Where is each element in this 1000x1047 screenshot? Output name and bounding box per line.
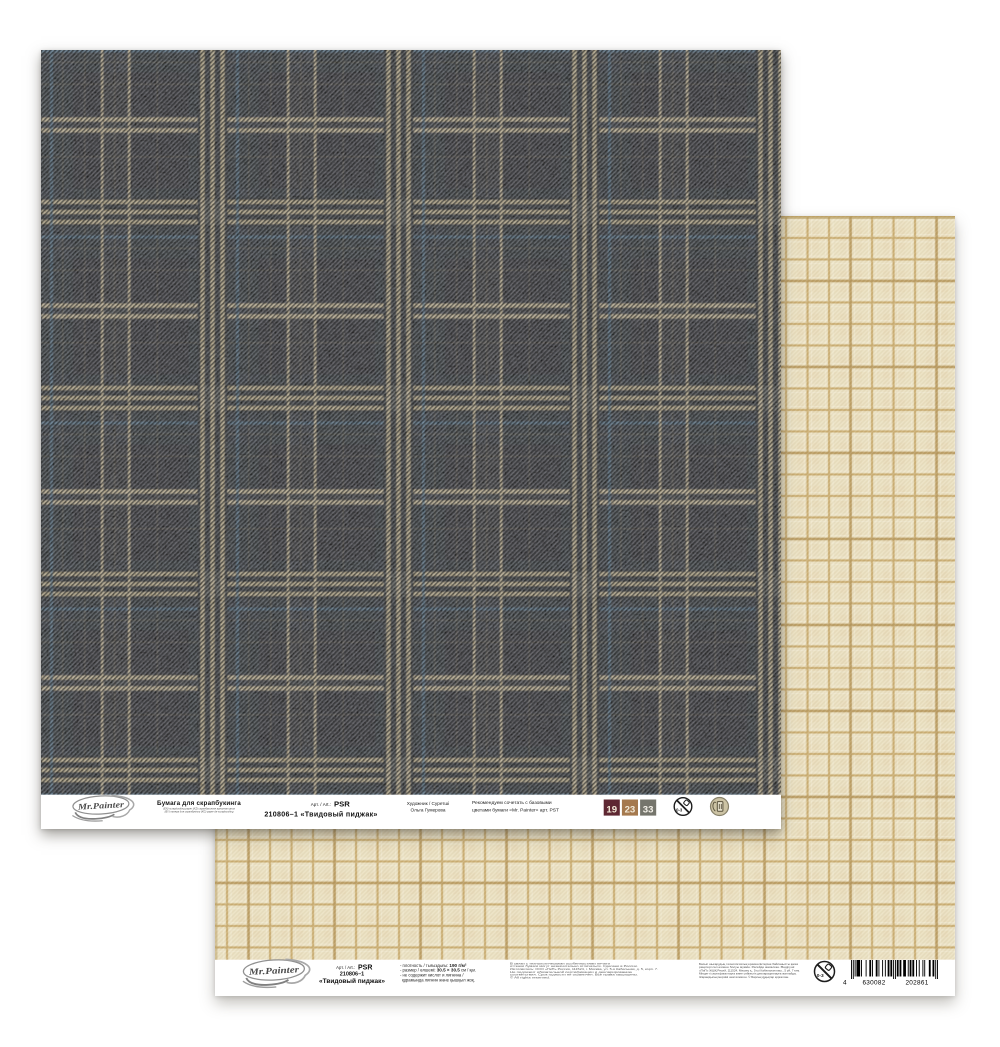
svg-text:210806–1 «Твидовый пиджак»: 210806–1 «Твидовый пиджак» [264,810,377,818]
svg-text:PSR: PSR [334,799,350,808]
svg-text:PSR: PSR [358,964,372,971]
svg-text:33: 33 [643,804,654,815]
svg-text:4: 4 [843,980,847,987]
svg-text:Арт. / Art.:: Арт. / Art.: [311,802,331,807]
svg-text:202861: 202861 [905,980,928,987]
svg-text:(BY) папера для скрапбукінгу (: (BY) папера для скрапбукінгу (KG) paper … [165,810,234,814]
svg-text:0-3: 0-3 [676,807,683,812]
svg-text:23: 23 [625,804,636,815]
svg-text:Ольга Гумерова: Ольга Гумерова [411,807,446,812]
svg-text:0-3: 0-3 [817,973,824,979]
svg-text:«Твидовый пиджак»: «Твидовый пиджак» [319,977,385,985]
svg-text:210806–1: 210806–1 [340,972,364,978]
svg-text:Художник / Суретші: Художник / Суретші [407,801,450,806]
svg-text:630082: 630082 [862,980,885,987]
svg-text:Жарамдылық мерзімі шектелмеген: Жарамдылық мерзімі шектелмеген. © Барлық… [699,975,789,979]
svg-text:цветами бумаги «Mr. Painter» а: цветами бумаги «Mr. Painter» арт. PST [472,807,559,813]
svg-text:Рекомендуем сочетать с базовым: Рекомендуем сочетать с базовыми [472,800,552,806]
svg-text:Арт. / Art.:: Арт. / Art.: [336,965,355,970]
svg-text:© All rights reserved.: © All rights reserved. [510,975,550,979]
svg-text:19: 19 [606,804,617,815]
svg-text:құрамында лигнин және қышқыл ж: құрамында лигнин және қышқыл жоқ. [402,977,475,982]
svg-text:Бумага для скрапбукинга: Бумага для скрапбукинга [157,799,241,807]
